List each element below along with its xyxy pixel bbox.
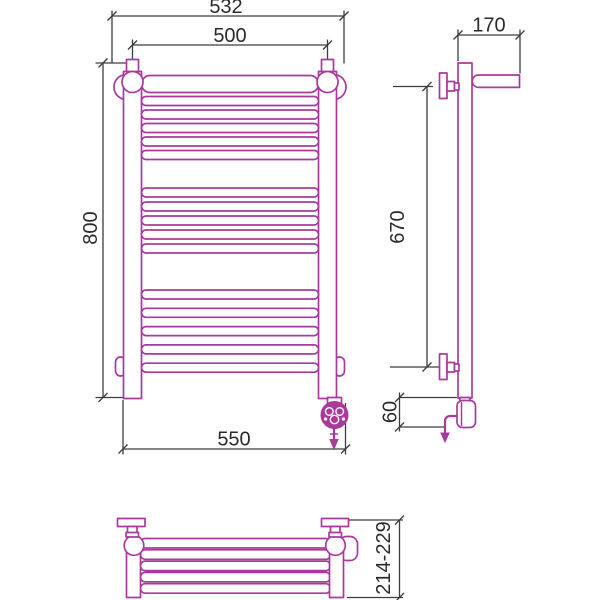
side-profile-tube (458, 63, 472, 398)
dim-side-element-height-label: 60 (380, 401, 402, 423)
dim-front-inner-width-label: 500 (213, 25, 246, 47)
front-rail (114, 60, 348, 450)
rung (142, 124, 319, 133)
dim-front-height-label: 800 (80, 211, 102, 244)
rung (142, 110, 319, 119)
side-view: 170 670 60 (380, 15, 525, 443)
bracket-bar (118, 519, 146, 527)
rung (142, 308, 319, 317)
dim-side-bracket-span-label: 670 (387, 210, 409, 243)
wall-bracket-bottom (440, 354, 460, 380)
side-tube-right (319, 72, 337, 399)
side-rail (440, 63, 520, 442)
dim-front-outer-width-label: 532 (209, 0, 242, 18)
bracket-plate (440, 73, 448, 99)
rung (142, 202, 319, 211)
heating-element-side (441, 398, 476, 443)
shelf-arm (472, 75, 519, 87)
front-view: 532 500 800 550 (80, 0, 350, 455)
dim-front-bottom-width-label: 550 (217, 429, 250, 451)
towel-rail-drawing: 532 500 800 550 (0, 0, 600, 600)
shelf-tube (141, 584, 331, 594)
mount-collar-right (326, 536, 346, 556)
rung (142, 327, 319, 336)
wall-bracket-top (440, 73, 460, 99)
bracket-screw (455, 83, 460, 90)
bracket-flare (329, 533, 342, 538)
mount-collar-right (317, 72, 338, 93)
element-cap-dot (324, 417, 327, 420)
shelf-tube (141, 539, 331, 549)
bracket-bar (322, 519, 349, 527)
rung (142, 188, 319, 197)
rung (142, 151, 319, 160)
power-cable (445, 416, 457, 429)
bracket-plate (440, 354, 448, 380)
element-housing (457, 401, 476, 428)
rung (142, 216, 319, 225)
shelf-tube (141, 550, 331, 560)
bracket-stem-left (127, 60, 139, 73)
top-rail (118, 519, 358, 598)
dim-top-depth-range-label: 214-229 (373, 521, 395, 594)
rung (142, 97, 319, 106)
front-dimensions: 532 500 800 550 (80, 0, 350, 455)
shelf-tube (141, 561, 331, 571)
top-view: 214-229 (118, 516, 405, 600)
rung (142, 363, 319, 372)
drawing-canvas: 532 500 800 550 (0, 0, 600, 600)
rung (142, 290, 319, 299)
rung (142, 230, 319, 239)
mount-collar-left (124, 536, 144, 556)
bracket-screw (455, 364, 460, 371)
rung (142, 345, 319, 354)
side-tube-left (124, 72, 142, 399)
rung (142, 137, 319, 146)
mount-collar-left (122, 72, 143, 93)
heating-element (321, 398, 348, 450)
cable-arrow-icon (330, 440, 338, 450)
bracket-flare (126, 533, 139, 538)
side-tube-top-right (330, 552, 344, 598)
bracket-boss (447, 82, 455, 92)
wall-bracket-right (322, 519, 349, 538)
element-cap-dot (342, 417, 345, 420)
rung (142, 244, 319, 253)
wall-bracket-left (118, 519, 146, 538)
dim-side-top-depth-label: 170 (472, 15, 505, 37)
cable-arrow-icon (441, 433, 449, 442)
bracket-boss (447, 363, 455, 373)
shelf-tube (141, 572, 331, 582)
header-tube (142, 76, 319, 93)
bracket-stem-right (322, 60, 334, 73)
